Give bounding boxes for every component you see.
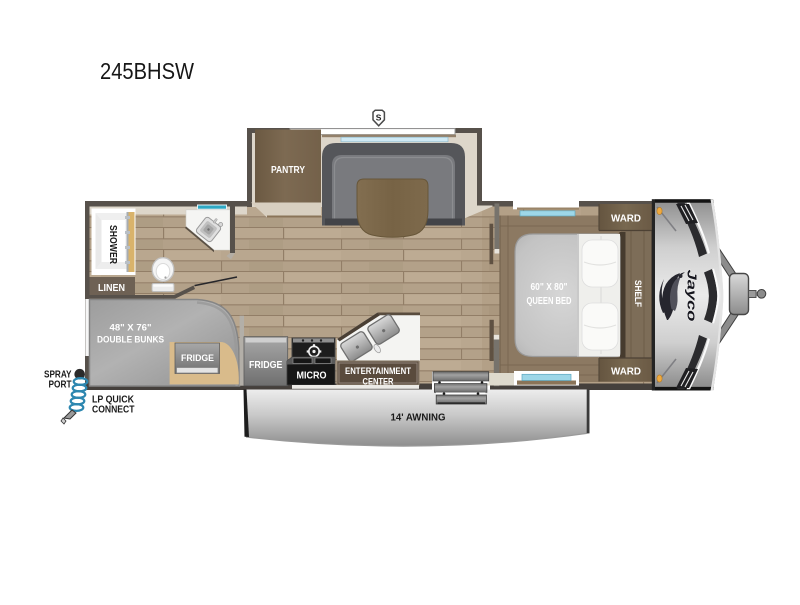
svg-text:LINEN: LINEN — [98, 283, 125, 294]
svg-text:60" X 80": 60" X 80" — [531, 282, 568, 293]
svg-text:SHOWER: SHOWER — [107, 225, 119, 264]
svg-text:MICRO: MICRO — [297, 370, 327, 382]
svg-text:FRIDGE: FRIDGE — [181, 353, 214, 364]
svg-text:ENTERTAINMENT: ENTERTAINMENT — [345, 366, 411, 377]
svg-text:245BHSW: 245BHSW — [100, 58, 194, 84]
svg-text:FRIDGE: FRIDGE — [249, 360, 283, 371]
svg-text:PANTRY: PANTRY — [271, 164, 305, 176]
svg-text:QUEEN BED: QUEEN BED — [527, 296, 572, 307]
svg-text:SHELF: SHELF — [632, 280, 643, 307]
svg-text:PORT: PORT — [49, 380, 72, 391]
svg-text:WARD: WARD — [611, 213, 641, 225]
svg-text:DOUBLE BUNKS: DOUBLE BUNKS — [97, 335, 164, 346]
svg-text:WARD: WARD — [611, 366, 641, 378]
svg-text:CONNECT: CONNECT — [92, 405, 135, 416]
svg-text:Jayco: Jayco — [685, 270, 699, 323]
svg-text:14' AWNING: 14' AWNING — [391, 412, 446, 424]
svg-text:S: S — [376, 113, 382, 123]
svg-text:48" X 76": 48" X 76" — [110, 323, 152, 334]
